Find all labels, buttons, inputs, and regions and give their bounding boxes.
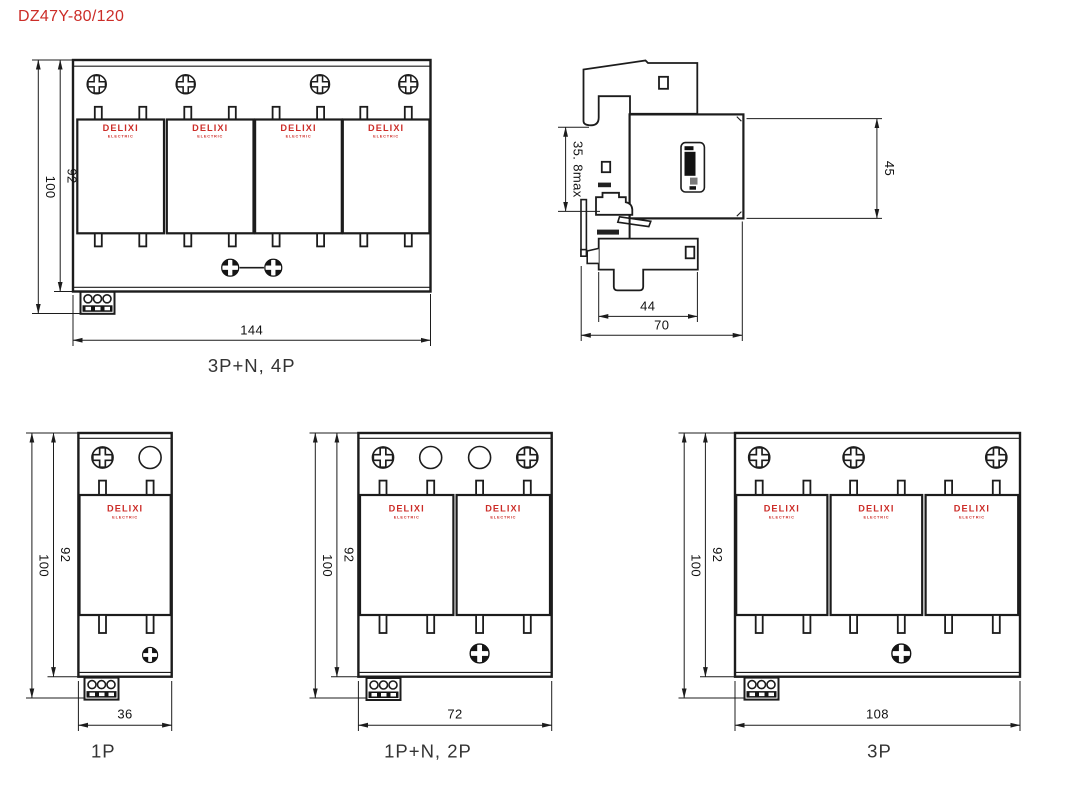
rail-slot (602, 162, 610, 172)
brand-logo (103, 123, 139, 139)
dim-module-height-label: 45 (882, 161, 897, 176)
brand-logo (389, 504, 425, 520)
screw-icon (399, 75, 418, 94)
brand-logo (858, 504, 894, 520)
front-view-4p: 92 100 144 3P+N, 4P (32, 60, 431, 376)
brand-logo (368, 123, 404, 139)
flange-slot (686, 247, 695, 259)
front-view-1p: 92 100 36 1P (26, 433, 172, 762)
dim-total-height-label: 100 (37, 554, 52, 577)
screw-icon (311, 75, 330, 94)
mounting-hole (139, 447, 161, 469)
dim-total-height-label: 100 (320, 554, 335, 577)
brand-logo (280, 123, 316, 139)
dim-total-height-label: 100 (43, 176, 58, 199)
dim-width-label: 108 (866, 706, 889, 721)
caption-2p: 1P+N, 2P (384, 741, 472, 762)
mounting-hole (420, 447, 442, 469)
brand-logo (107, 504, 143, 520)
screw-icon (986, 447, 1007, 468)
screw-icon (176, 75, 195, 94)
terminal-block (81, 292, 115, 314)
caption-3p: 3P (867, 741, 892, 762)
screw-icon (87, 75, 106, 94)
technical-drawing-canvas: DELIXI ELECTRIC DZ47Y-80/120 (0, 0, 1077, 790)
caption-1p: 1P (91, 741, 116, 762)
side-view: 35. 8max 45 44 70 (558, 61, 897, 342)
dim-body-height-label: 92 (710, 547, 725, 562)
lower-flange (599, 239, 698, 291)
terminal-block (745, 678, 779, 700)
dim-body-depth-label: 44 (640, 299, 655, 314)
brand-logo (954, 504, 990, 520)
dim-width-label: 36 (117, 706, 132, 721)
dim-rail-depth-label: 35. 8max (570, 141, 585, 198)
dim-width-label: 144 (240, 323, 263, 338)
terminal-block (85, 678, 119, 700)
screw-icon (843, 447, 864, 468)
screw-icon (373, 447, 394, 468)
din-clip (596, 193, 632, 215)
front-view-3p: 92 100 108 3P (679, 433, 1021, 762)
screw-icon (749, 447, 770, 468)
brand-logo (485, 504, 521, 520)
screw-icon (517, 447, 538, 468)
spd-modules (77, 120, 429, 234)
caption-4p: 3P+N, 4P (208, 355, 296, 376)
dim-width-label: 72 (447, 706, 462, 721)
dim-body-height-label: 92 (341, 547, 356, 562)
brand-logo (192, 123, 228, 139)
terminal-block (367, 678, 401, 700)
dim-body-height-label: 92 (65, 168, 80, 183)
flange-slot (659, 77, 668, 89)
page-title: DZ47Y-80/120 (18, 8, 124, 25)
brand-logo (764, 504, 800, 520)
front-view-2p: 92 100 72 1P+N, 2P (310, 433, 552, 762)
dim-total-depth-label: 70 (654, 318, 669, 333)
mounting-hole (469, 447, 491, 469)
dim-total-height-label: 100 (689, 554, 704, 577)
dim-body-height-label: 92 (58, 547, 73, 562)
screw-icon (92, 447, 113, 468)
